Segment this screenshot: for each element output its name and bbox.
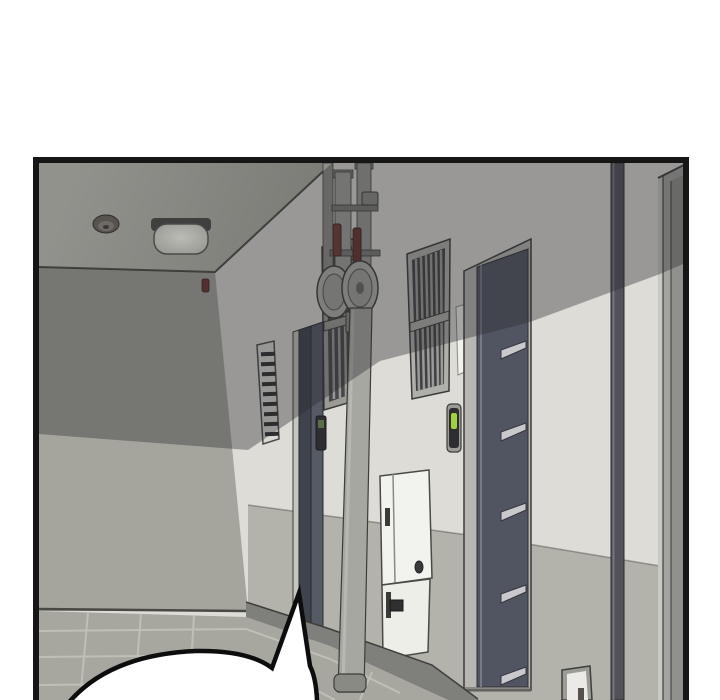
outlet-box-detail (578, 688, 584, 700)
webtoon-page (0, 0, 720, 700)
door-threshold (464, 687, 531, 692)
green-led (451, 413, 457, 429)
panel-interior (39, 161, 686, 700)
cabinet-handle (415, 561, 423, 573)
latch-handle (390, 600, 403, 611)
keypad-display (318, 420, 324, 428)
electrical-cabinet-lower (382, 579, 430, 659)
outlet-box-face (567, 671, 588, 700)
wall-outlet-box (562, 666, 592, 700)
comic-panel-canvas (0, 0, 720, 700)
electrical-cabinet-upper (380, 470, 432, 585)
ceiling-lamp (151, 218, 211, 254)
pipe-base-flange (334, 674, 366, 692)
cabinet-vent-slot (385, 508, 390, 526)
smoke-detector-center (103, 225, 109, 229)
lamp-dome (154, 224, 208, 254)
card-reader (447, 404, 461, 452)
smoke-detector (93, 215, 119, 233)
